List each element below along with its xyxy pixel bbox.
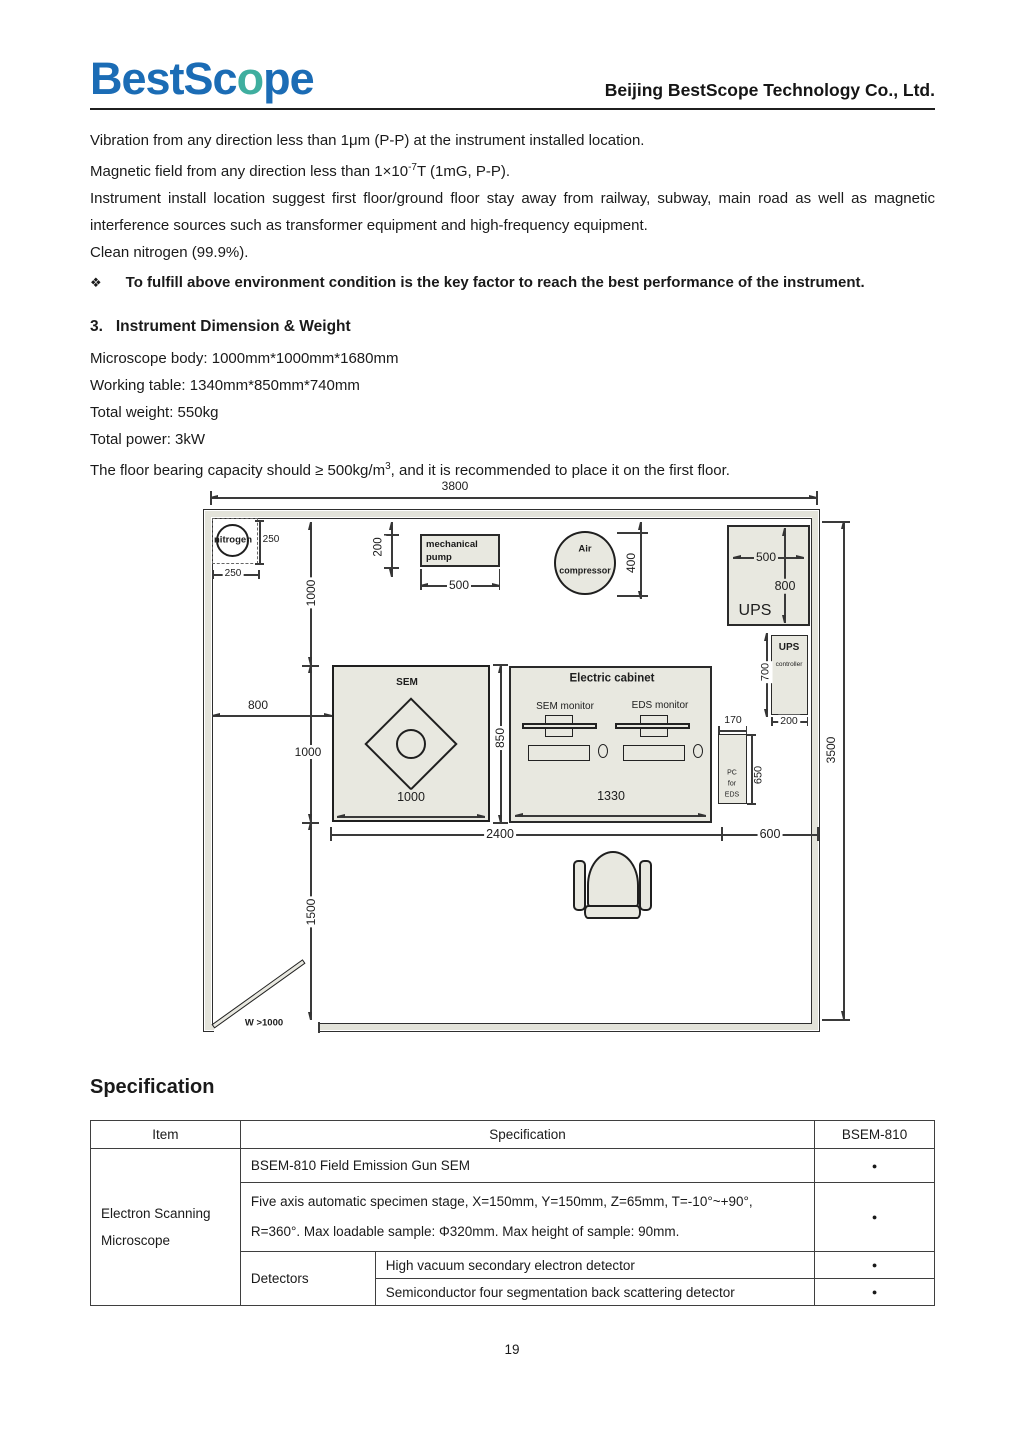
dim-arrow bbox=[308, 1012, 312, 1020]
dim-nitrogen-h-label: 250 bbox=[263, 535, 280, 545]
door-width-label: W >1000 bbox=[245, 1018, 283, 1028]
pc-label-3: EDS bbox=[723, 791, 741, 800]
dim-wall-sem-left-line bbox=[212, 715, 332, 717]
dim-tick bbox=[617, 532, 648, 534]
dim-arrow bbox=[308, 822, 312, 830]
install-location-line: Instrument install location suggest firs… bbox=[90, 185, 935, 239]
dim-tick bbox=[816, 491, 818, 505]
dim-arrow bbox=[324, 713, 332, 717]
dim-pump-width-label: 500 bbox=[447, 578, 471, 592]
eds-monitor-label: EDS monitor bbox=[630, 700, 691, 712]
page-number: 19 bbox=[0, 1342, 1024, 1357]
document-page: BestScope Beijing BestScope Technology C… bbox=[0, 0, 1024, 1448]
eds-mouse-icon bbox=[693, 744, 703, 758]
dim-pump-depth-label: 200 bbox=[372, 535, 386, 558]
spec-cell: High vacuum secondary electron detector bbox=[375, 1252, 814, 1279]
dim-arrow bbox=[498, 665, 502, 673]
chair-armrest-right bbox=[639, 860, 652, 911]
dim-cabinet-width-label: 1330 bbox=[595, 789, 627, 804]
ups-controller-label-1: UPS bbox=[777, 642, 802, 654]
dim-tick bbox=[212, 570, 214, 579]
dimension-weight-section: 3. Instrument Dimension & Weight Microsc… bbox=[90, 312, 935, 484]
dim-tick bbox=[493, 664, 508, 666]
dim-room-height-label: 3500 bbox=[825, 737, 837, 764]
spec-cell: Semiconductor four segmentation back sca… bbox=[375, 1279, 814, 1306]
dim-bottom-left-label: 2400 bbox=[484, 827, 516, 842]
section-heading: 3. Instrument Dimension & Weight bbox=[90, 312, 935, 342]
spec-line-1: Five axis automatic specimen stage, X=15… bbox=[251, 1187, 804, 1217]
ups-controller-label-2: controller bbox=[774, 661, 805, 670]
col-header-model: BSEM-810 bbox=[815, 1121, 935, 1149]
dim-tick bbox=[822, 1019, 850, 1021]
dim-tick bbox=[210, 491, 212, 505]
dim-tick bbox=[617, 595, 648, 597]
header: BestScope Beijing BestScope Technology C… bbox=[90, 56, 935, 110]
specification-table-wrap: Item Specification BSEM-810 Electron Sca… bbox=[90, 1120, 935, 1306]
dim-ups-ctrl-height-label: 700 bbox=[760, 661, 773, 683]
dim-arrow bbox=[308, 814, 312, 822]
model-dot-cell: ● bbox=[815, 1252, 935, 1279]
logo-text-2: pe bbox=[263, 53, 314, 104]
dim-tick bbox=[493, 822, 508, 824]
magnetic-post: T (1mG, P-P). bbox=[417, 163, 510, 180]
dim-arrow bbox=[308, 657, 312, 665]
dim-sem-width-label: 1000 bbox=[395, 790, 427, 805]
magnetic-line: Magnetic field from any direction less t… bbox=[90, 154, 935, 185]
dim-tick bbox=[499, 569, 501, 590]
dim-pc-height-label: 650 bbox=[754, 766, 765, 784]
eds-keyboard bbox=[623, 745, 685, 761]
dim-arrow bbox=[796, 555, 804, 559]
dim-tick bbox=[302, 665, 319, 667]
pump-label-2: pump bbox=[426, 551, 494, 564]
dim-wall-sem-top-label: 1000 bbox=[304, 578, 318, 609]
item-group-cell: Electron Scanning Microscope bbox=[91, 1149, 241, 1306]
mechanical-pump-box: mechanical pump bbox=[420, 534, 500, 567]
dim-tick bbox=[420, 569, 422, 590]
dim-bottom-left-line bbox=[330, 834, 721, 836]
dim-cabinet-height-label: 850 bbox=[493, 726, 507, 750]
spec-cell: Five axis automatic specimen stage, X=15… bbox=[240, 1183, 814, 1252]
dim-arrow bbox=[308, 522, 312, 530]
air-compressor-label-2: compressor bbox=[559, 567, 611, 576]
dim-tick bbox=[721, 827, 723, 841]
dim-pc-width-line bbox=[718, 730, 747, 732]
header-rule: BestScope Beijing BestScope Technology C… bbox=[90, 56, 935, 110]
specification-heading: Specification bbox=[90, 1076, 214, 1099]
dim-arrow bbox=[212, 713, 220, 717]
dim-bottom-right-label: 600 bbox=[758, 827, 783, 842]
pc-label-2: for bbox=[726, 780, 738, 789]
dim-room-height-line bbox=[843, 521, 845, 1019]
spec-line-2: R=360°. Max loadable sample: Φ320mm. Max… bbox=[251, 1217, 804, 1247]
dim-arrow bbox=[389, 569, 393, 577]
col-header-item: Item bbox=[91, 1121, 241, 1149]
dim-ups-height-label: 800 bbox=[773, 579, 798, 594]
sem-mouse-icon bbox=[598, 744, 608, 758]
dim-arrow bbox=[492, 583, 500, 587]
key-note-text: To fulfill above environment condition i… bbox=[126, 269, 865, 296]
air-compressor bbox=[554, 531, 616, 595]
table-row: Electron Scanning Microscope BSEM-810 Fi… bbox=[91, 1149, 935, 1183]
logo-text-1: BestSc bbox=[90, 53, 237, 104]
total-power-line: Total power: 3kW bbox=[90, 426, 935, 453]
floor-post: , and it is recommended to place it on t… bbox=[391, 462, 730, 479]
detectors-group-cell: Detectors bbox=[240, 1252, 375, 1306]
magnetic-sup: -7 bbox=[408, 162, 417, 173]
col-header-spec: Specification bbox=[240, 1121, 814, 1149]
dim-nitrogen-h-line bbox=[259, 520, 261, 564]
dim-arrow bbox=[638, 522, 642, 530]
dim-tick bbox=[330, 827, 332, 841]
dim-arrow bbox=[389, 522, 393, 530]
dim-nitrogen-w-label: 250 bbox=[223, 568, 244, 580]
bestscope-logo: BestScope bbox=[90, 56, 314, 101]
dim-arrow bbox=[764, 709, 768, 717]
dim-tick bbox=[771, 717, 773, 726]
specification-table: Item Specification BSEM-810 Electron Sca… bbox=[90, 1120, 935, 1306]
sem-keyboard bbox=[528, 745, 590, 761]
model-dot-cell: ● bbox=[815, 1183, 935, 1252]
spec-cell: BSEM-810 Field Emission Gun SEM bbox=[240, 1149, 814, 1183]
dim-sem-width-line bbox=[337, 816, 485, 818]
total-weight-line: Total weight: 550kg bbox=[90, 399, 935, 426]
dim-ups-ctrl-width-label: 200 bbox=[778, 715, 800, 728]
dim-ups-height-line bbox=[784, 528, 786, 623]
dim-arrow bbox=[698, 813, 706, 817]
dim-tick bbox=[258, 570, 260, 579]
dim-arrow bbox=[782, 615, 786, 623]
sem-column-circle bbox=[396, 729, 426, 759]
installation-floor-plan: 3800 3500 nitrogen 250 250 1000 bbox=[0, 478, 1024, 1056]
dim-arrow bbox=[733, 555, 741, 559]
dim-pc-width-label: 170 bbox=[722, 714, 744, 727]
logo-o-glyph: o bbox=[237, 53, 264, 104]
table-header-row: Item Specification BSEM-810 bbox=[91, 1121, 935, 1149]
dim-sem-height-label: 1000 bbox=[293, 745, 324, 759]
section-number: 3. bbox=[90, 318, 103, 335]
company-name: Beijing BestScope Technology Co., Ltd. bbox=[605, 80, 935, 101]
vibration-line: Vibration from any direction less than 1… bbox=[90, 127, 935, 154]
floor-pre: The floor bearing capacity should ≥ 500k… bbox=[90, 462, 385, 479]
dim-sem-wall-bottom-label: 1500 bbox=[304, 897, 318, 928]
dim-tick bbox=[384, 534, 399, 536]
dim-arrow bbox=[764, 633, 768, 641]
magnetic-pre: Magnetic field from any direction less t… bbox=[90, 163, 408, 180]
model-dot-cell: ● bbox=[815, 1149, 935, 1183]
ups-label: UPS bbox=[737, 602, 774, 620]
dim-tick bbox=[255, 563, 264, 565]
dim-tick bbox=[747, 734, 756, 736]
eds-monitor-screen bbox=[615, 723, 690, 729]
dim-arrow bbox=[841, 1011, 845, 1019]
model-dot-cell: ● bbox=[815, 1279, 935, 1306]
dim-tick bbox=[384, 567, 399, 569]
pump-label-1: mechanical bbox=[426, 538, 494, 551]
key-note: ❖ To fulfill above environment condition… bbox=[90, 269, 935, 296]
sem-monitor-screen bbox=[522, 723, 597, 729]
sem-monitor-label: SEM monitor bbox=[534, 701, 596, 713]
section-title: Instrument Dimension & Weight bbox=[116, 318, 351, 335]
nitrogen-label: nitrogen bbox=[214, 535, 252, 545]
chair-armrest-left bbox=[573, 860, 586, 911]
dim-tick bbox=[747, 803, 756, 805]
dim-arrow bbox=[515, 813, 523, 817]
dim-arrow bbox=[477, 814, 485, 818]
dim-cabinet-width-line bbox=[515, 815, 706, 817]
chair-seat bbox=[584, 905, 641, 919]
dim-sem-height-line bbox=[310, 665, 312, 822]
dim-tick bbox=[822, 521, 850, 523]
diamond-bullet-icon: ❖ bbox=[90, 269, 102, 296]
microscope-body-line: Microscope body: 1000mm*1000mm*1680mm bbox=[90, 345, 935, 372]
working-table-line: Working table: 1340mm*850mm*740mm bbox=[90, 372, 935, 399]
dim-compressor-line bbox=[640, 522, 642, 599]
dim-room-width-line bbox=[210, 497, 817, 499]
nitrogen-line: Clean nitrogen (99.9%). bbox=[90, 239, 935, 266]
electric-cabinet-label: Electric cabinet bbox=[567, 672, 656, 686]
dim-room-width-label: 3800 bbox=[442, 480, 469, 492]
dim-arrow bbox=[337, 814, 345, 818]
dim-tick bbox=[255, 520, 264, 522]
air-compressor-label-1: Air bbox=[578, 544, 591, 554]
dim-tick bbox=[817, 827, 819, 841]
sem-label: SEM bbox=[394, 677, 420, 689]
dim-compressor-label: 400 bbox=[624, 551, 638, 575]
dim-arrow bbox=[782, 528, 786, 536]
pc-label-1: PC bbox=[725, 769, 739, 778]
environment-section: Vibration from any direction less than 1… bbox=[90, 127, 935, 296]
dim-ups-width-label: 500 bbox=[754, 550, 778, 564]
dim-arrow bbox=[420, 583, 428, 587]
wall-end-line bbox=[318, 1022, 320, 1033]
dim-wall-sem-left-label: 800 bbox=[248, 699, 268, 711]
dim-tick bbox=[807, 717, 809, 726]
